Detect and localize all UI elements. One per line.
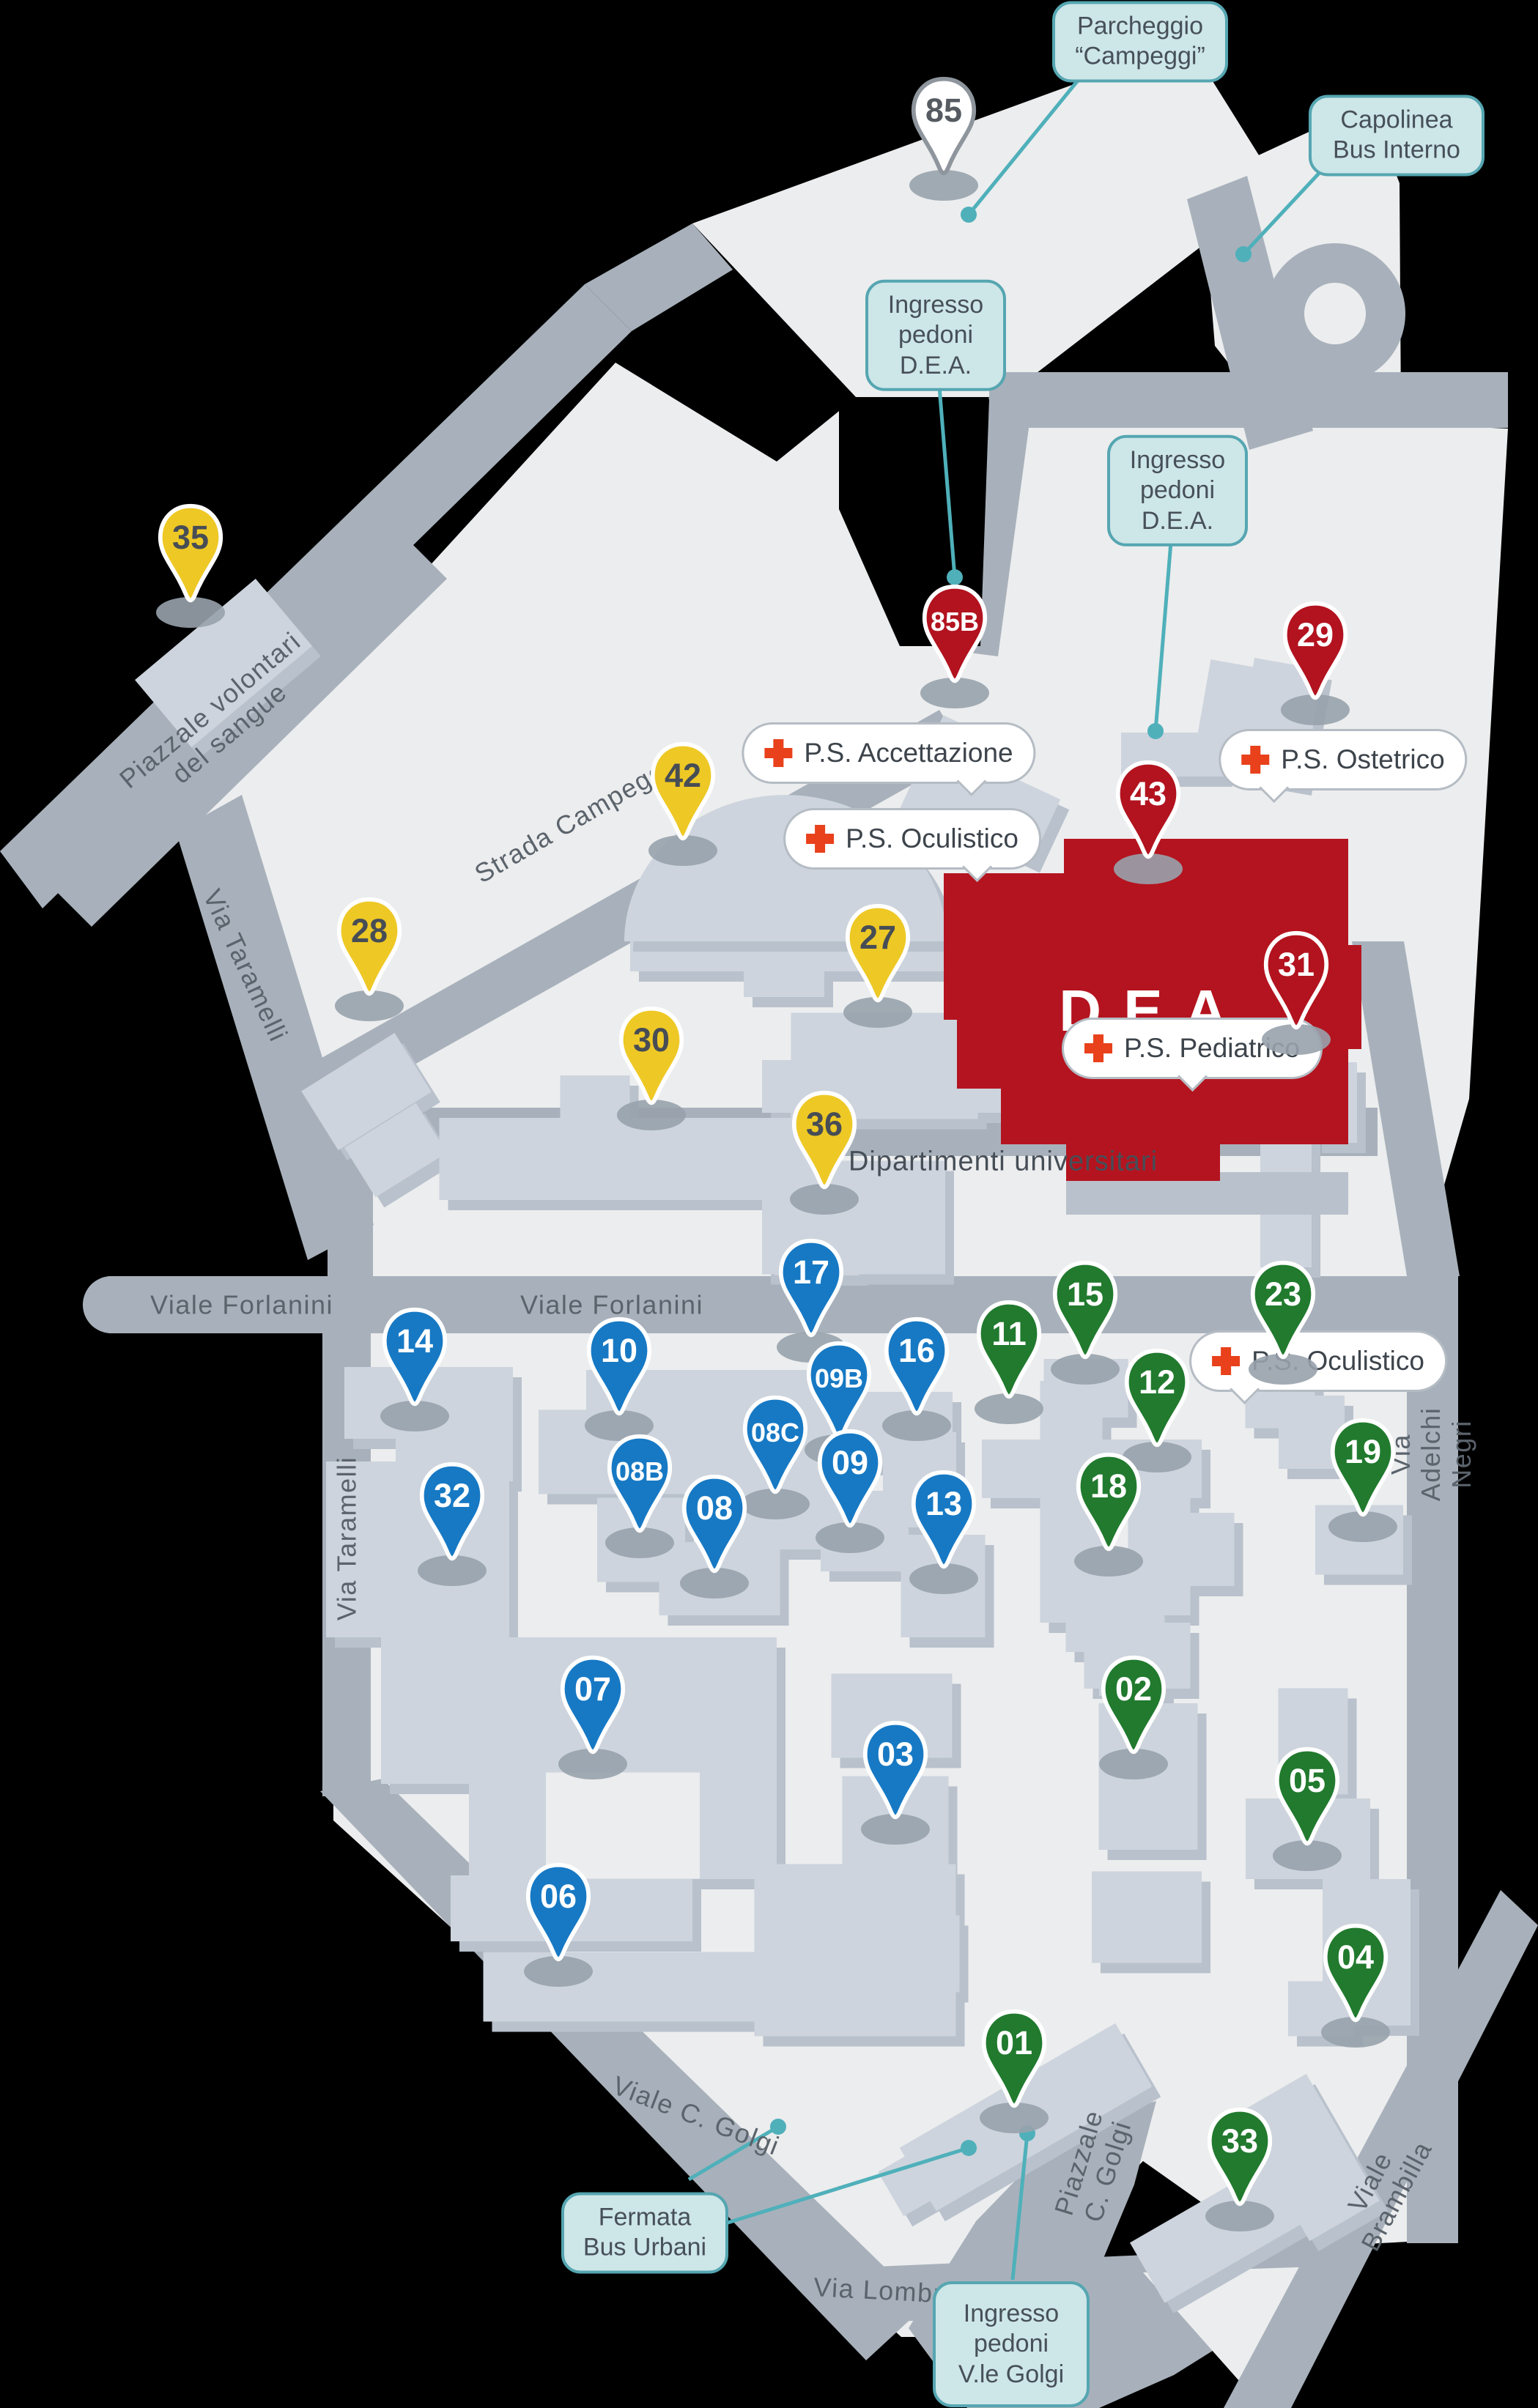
pin-02[interactable]: 02 [1098,1653,1169,1757]
tooltip-ingresso-pedoni-dea-est: Ingresso pedoni D.E.A. [1107,435,1248,547]
ps-label-p-s-accettazione: P.S. Accettazione [742,722,1035,784]
building [381,1637,469,1784]
pin-number: 14 [380,1325,450,1358]
pin-14[interactable]: 14 [380,1305,450,1409]
pin-08c[interactable]: 08C [740,1393,810,1497]
pin-07[interactable]: 07 [558,1653,628,1757]
pin-85[interactable]: 85 [909,75,979,179]
pin-number: 23 [1248,1278,1318,1311]
pin-number: 08 [679,1492,750,1525]
pin-27[interactable]: 27 [843,902,913,1006]
pin-28[interactable]: 28 [334,895,404,999]
street-label-via-adelchi-negri: Via Adelchi Negri [1386,1401,1476,1508]
pin-number: 01 [979,2026,1049,2060]
pin-33[interactable]: 33 [1205,2105,1275,2209]
pin-number: 17 [776,1256,846,1289]
red-cross-icon [806,825,834,853]
pin-18[interactable]: 18 [1073,1451,1144,1555]
building [440,1118,810,1200]
pin-10[interactable]: 10 [584,1315,654,1419]
pin-number: 43 [1113,777,1183,811]
pin-43[interactable]: 43 [1113,758,1183,862]
pin-35[interactable]: 35 [155,502,226,606]
pin-number: 16 [881,1334,952,1368]
ps-label-p-s-ostetrico: P.S. Ostetrico [1219,729,1467,790]
pin-08b[interactable]: 08B [605,1432,675,1536]
building [1187,1513,1235,1586]
building [1092,1872,1202,1963]
pin-number: 28 [334,914,404,948]
pin-number: 09 [815,1446,885,1480]
pin-08[interactable]: 08 [679,1472,750,1577]
pin-number: 29 [1280,618,1350,652]
pin-13[interactable]: 13 [909,1468,979,1572]
pin-23[interactable]: 23 [1248,1259,1318,1363]
pin-36[interactable]: 36 [789,1089,859,1193]
ps-label-text: P.S. Accettazione [804,738,1013,768]
building [755,1864,956,2037]
basemap [0,0,1538,2408]
pin-number: 11 [974,1317,1044,1351]
pin-number: 12 [1122,1366,1192,1399]
pin-number: 32 [417,1479,487,1513]
pin-number: 30 [616,1023,687,1057]
pin-85b[interactable]: 85B [920,582,990,686]
street-label-viale-forlanini: Viale Forlanini [150,1289,333,1319]
pin-01[interactable]: 01 [979,2007,1049,2111]
pin-number: 05 [1272,1764,1342,1798]
tooltip-capolinea-bus-interno: Capolinea Bus Interno [1309,95,1485,177]
pin-19[interactable]: 19 [1328,1416,1398,1520]
pin-number: 08B [605,1455,675,1489]
pin-15[interactable]: 15 [1050,1259,1120,1363]
pin-number: 42 [648,759,718,793]
tooltip-parcheggio-campeggi: Parcheggio “Campeggi” [1052,1,1228,83]
pin-number: 10 [584,1334,654,1368]
pin-number: 09B [804,1362,874,1396]
red-cross-icon [764,739,792,767]
pin-04[interactable]: 04 [1320,1922,1391,2026]
pin-12[interactable]: 12 [1122,1346,1192,1451]
pin-29[interactable]: 29 [1280,599,1350,703]
tooltip-ingresso-pedoni-vle-golgi: Ingresso pedoni V.le Golgi [933,2281,1090,2407]
pin-number: 02 [1098,1672,1169,1706]
pin-number: 03 [860,1738,931,1771]
ps-label-text: P.S. Oculistico [846,823,1018,854]
area-label-dipartimenti-universitari: Dipartimenti universitari [849,1146,1158,1178]
pin-number: 27 [843,921,913,955]
hospital-campus-map: Piazzale volontari del sangueStrada Camp… [0,0,1538,2408]
pin-number: 33 [1205,2124,1275,2158]
pin-16[interactable]: 16 [881,1315,952,1419]
pin-06[interactable]: 06 [523,1861,594,1965]
pin-number: 36 [789,1108,859,1141]
pin-number: 31 [1261,948,1331,982]
pin-03[interactable]: 03 [860,1719,931,1823]
pin-number: 06 [523,1880,594,1914]
ps-label-text: P.S. Ostetrico [1281,744,1444,775]
red-cross-icon [1212,1347,1240,1375]
pin-32[interactable]: 32 [417,1460,487,1564]
pin-number: 85 [909,94,979,127]
pin-11[interactable]: 11 [974,1298,1044,1402]
pin-number: 15 [1050,1278,1120,1311]
pin-number: 04 [1320,1941,1391,1974]
pin-number: 07 [558,1672,628,1706]
pin-number: 85B [920,605,990,639]
pin-number: 13 [909,1487,979,1521]
pin-number: 19 [1328,1435,1398,1469]
red-cross-icon [1084,1034,1112,1062]
tooltip-ingresso-pedoni-dea-ovest: Ingresso pedoni D.E.A. [865,280,1006,391]
pin-number: 35 [155,521,226,555]
pin-number: 08C [740,1416,810,1450]
pin-17[interactable]: 17 [776,1237,846,1341]
street-label-via-taramelli: Via Taramelli [331,1456,361,1620]
pin-number: 18 [1073,1470,1144,1503]
pin-30[interactable]: 30 [616,1004,687,1108]
pin-09[interactable]: 09 [815,1427,885,1531]
tooltip-fermata-bus-urbani: Fermata Bus Urbani [561,2193,728,2274]
pin-42[interactable]: 42 [648,740,718,844]
pin-05[interactable]: 05 [1272,1745,1342,1849]
pin-31[interactable]: 31 [1261,929,1331,1033]
ps-label-p-s-oculistico: P.S. Oculistico [783,808,1041,870]
ps-label-p-s-oculistico: P.S. Oculistico [1189,1330,1447,1392]
red-cross-icon [1241,746,1269,774]
